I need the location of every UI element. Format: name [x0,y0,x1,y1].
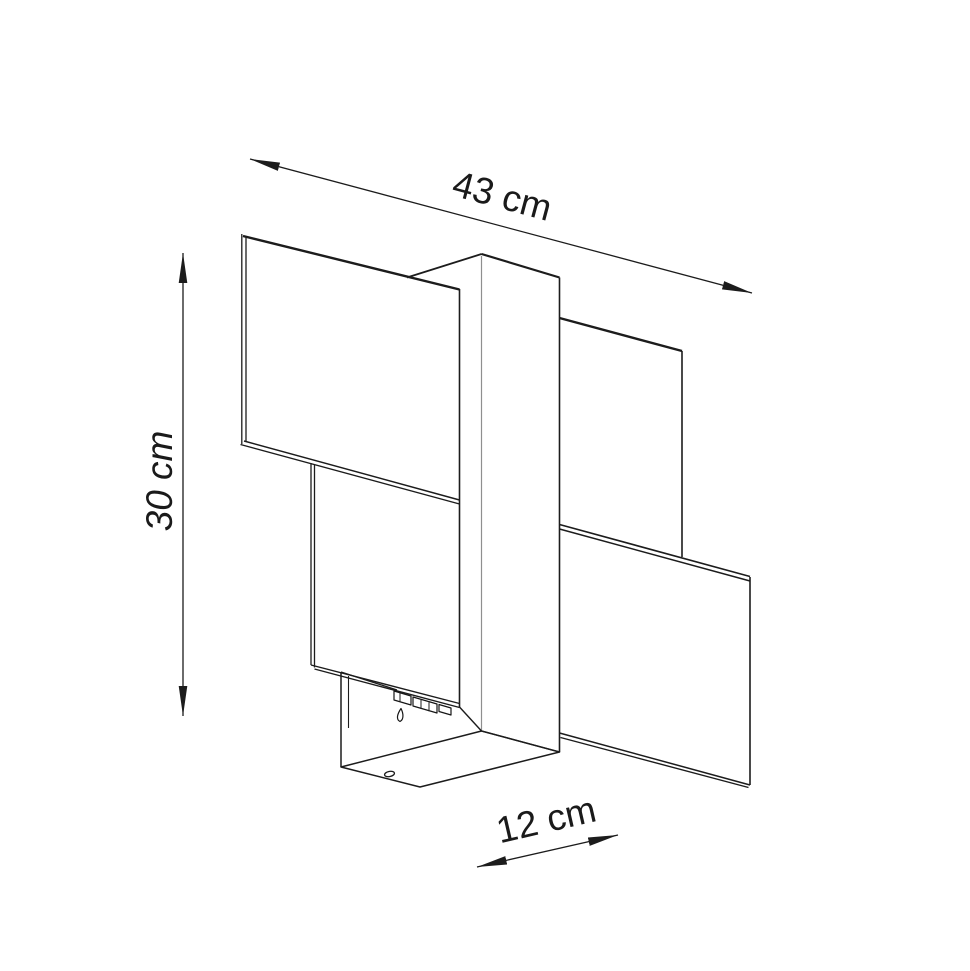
depth-dimension: 12 cm [477,789,618,867]
lower-left-glass-panel [311,463,460,708]
product-dimension-diagram: 43 cm 30 cm 12 cm [0,0,970,971]
cable-hole [384,770,395,777]
height-dimension: 30 cm [139,253,183,716]
width-dimension: 43 cm [250,159,752,293]
wall-mount-box [341,672,560,787]
depth-dimension-label: 12 cm [492,789,599,852]
upper-left-glass-panel [241,234,460,504]
center-column [407,254,560,752]
terminal-block [394,691,451,722]
upper-right-glass-panel [560,318,683,557]
height-dimension-label: 30 cm [139,431,180,532]
lower-right-glass-panel [560,525,751,788]
cable-hook [397,709,402,722]
width-dimension-label: 43 cm [448,163,556,229]
wall-lamp-drawing [241,234,751,788]
diagram-canvas: 43 cm 30 cm 12 cm [0,0,970,971]
